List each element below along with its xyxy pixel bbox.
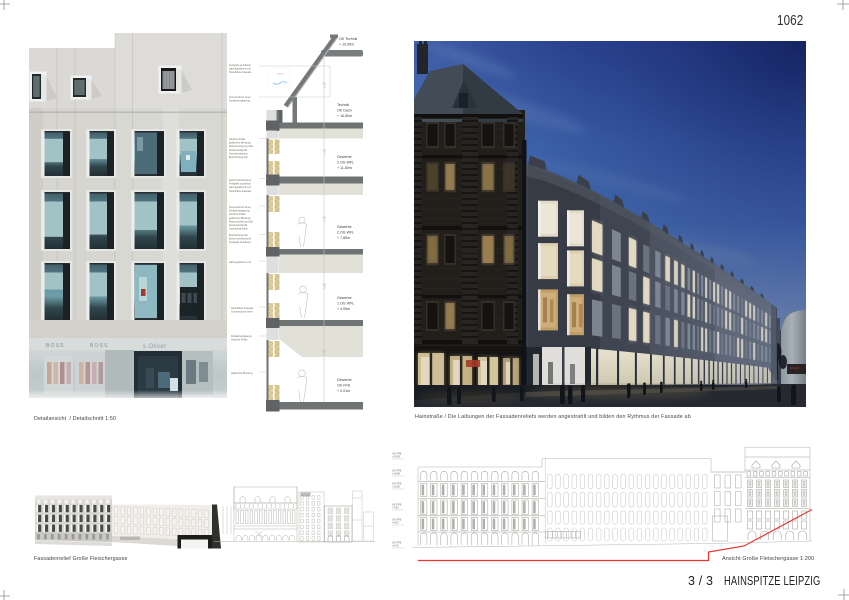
svg-text:+19,50: +19,50 [392,455,401,459]
svg-text:gedämmte Brüstung: gedämmte Brüstung [229,217,251,220]
svg-text:Unterkonstruktion: Unterkonstruktion [229,152,248,155]
svg-text:+ 0,01m: + 0,01m [337,389,350,393]
svg-text:+7,85: +7,85 [392,506,399,510]
svg-text:+0,00: +0,00 [392,544,399,548]
svg-text:+ 4,05m: + 4,05m [337,307,350,311]
svg-text:Beschichtung hell: Beschichtung hell [229,156,248,159]
svg-text:4,45: 4,45 [323,349,327,355]
svg-text:+ 7,85m: + 7,85m [337,236,350,240]
svg-text:Deckenrandprofil: Deckenrandprofil [229,224,248,227]
svg-text:eloxierte Profile: eloxierte Profile [229,138,246,141]
svg-text:gedämmte Brüstung: gedämmte Brüstung [231,372,253,375]
svg-text:4,45: 4,45 [323,216,327,222]
svg-text:4,45: 4,45 [323,149,327,155]
svg-text:wärmegedämmt und: wärmegedämmt und [229,261,251,264]
svg-text:2.OG WFL: 2.OG WFL [337,161,354,165]
svg-text:+ 16,80m: + 16,80m [337,114,352,118]
svg-text:2.OG WFL: 2.OG WFL [337,231,354,235]
svg-text:Technik: Technik [337,103,349,107]
svg-text:+4,05: +4,05 [392,521,399,525]
svg-text:Dreifachverglasung: Dreifachverglasung [229,210,250,213]
svg-text:OK Dach: OK Dach [337,109,352,113]
svg-text:BOSS: BOSS [46,343,65,349]
svg-text:Unterkonstruktion: Unterkonstruktion [229,228,248,231]
svg-text:4,45: 4,45 [323,82,327,88]
svg-text:Deckenrandprofil: Deckenrandprofil [229,149,248,152]
svg-text:Beschichtung hell: Beschichtung hell [229,234,248,237]
svg-text:gedämmte Brüstung: gedämmte Brüstung [229,142,251,145]
svg-text:BOSS: BOSS [90,343,109,349]
svg-text:Gewerbe: Gewerbe [337,296,352,300]
svg-text:eloxierte Profile: eloxierte Profile [229,213,246,216]
svg-text:Gewerbe: Gewerbe [337,155,352,159]
svg-text:Fertigteile aus Beton: Fertigteile aus Beton [229,241,252,244]
svg-text:eloxierte Profile: eloxierte Profile [231,339,248,342]
svg-text:Fertigteile aus Beton: Fertigteile aus Beton [229,183,252,186]
svg-text:wärmegedämmt und: wärmegedämmt und [229,186,251,189]
svg-text:Absturzsicherung Glas: Absturzsicherung Glas [229,145,254,148]
svg-text:hinterlüftete Fassade: hinterlüftete Fassade [229,71,252,74]
svg-text:s.Oliver: s.Oliver [143,344,167,350]
svg-text:Absturzsicherung Glas: Absturzsicherung Glas [229,220,254,223]
svg-text:Sonnenschutz innen: Sonnenschutz innen [229,206,251,209]
svg-text:hinterlüftete Fassade: hinterlüftete Fassade [229,190,252,193]
svg-text:wärmegedämmt und: wärmegedämmt und [229,68,251,71]
svg-text:Dreifachverglasung: Dreifachverglasung [231,335,252,338]
svg-text:Sonnenschutz innen: Sonnenschutz innen [229,96,251,99]
svg-text:hinterlüftete Fassade: hinterlüftete Fassade [231,307,254,310]
svg-text:Estrich schwimmend: Estrich schwimmend [229,238,252,241]
svg-text:4,45: 4,45 [323,283,327,289]
svg-text:Sonnenschutz innen: Sonnenschutz innen [231,311,253,314]
svg-text:+16,80: +16,80 [392,472,401,476]
svg-text:Estrich schwimmend: Estrich schwimmend [229,179,252,182]
svg-text:OK Technik: OK Technik [339,37,358,41]
svg-text:+ 19,50m: + 19,50m [339,43,354,47]
svg-text:Fertigteile aus Beton: Fertigteile aus Beton [229,64,252,67]
svg-text:+11,80: +11,80 [392,485,400,489]
svg-text:1.OG WFL: 1.OG WFL [337,302,354,306]
svg-text:OK FFB: OK FFB [337,384,351,388]
svg-text:Gewerbe: Gewerbe [337,378,352,382]
svg-text:Gewerbe: Gewerbe [337,225,352,229]
svg-text:+ 11,80m: + 11,80m [337,166,352,170]
svg-text:Dreifachverglasung: Dreifachverglasung [229,100,250,103]
